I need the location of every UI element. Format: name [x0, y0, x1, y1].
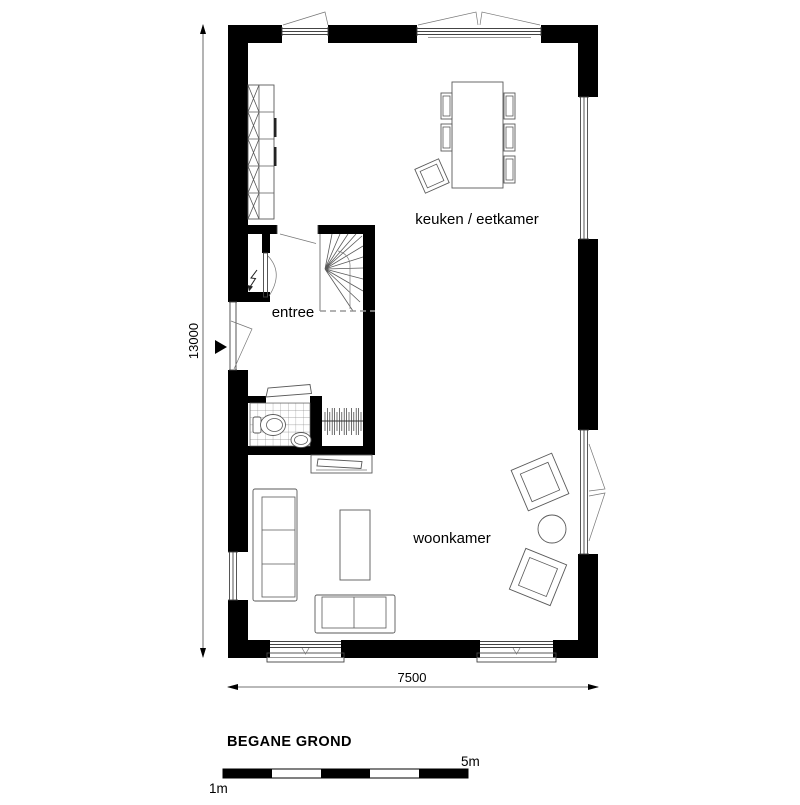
dimension-vertical: 13000 — [186, 24, 206, 658]
dimension-arrow-left — [227, 684, 238, 690]
dining-chair — [504, 93, 515, 119]
dining-table-set — [415, 82, 515, 193]
dining-table — [452, 82, 503, 188]
dimension-arrow-right — [588, 684, 599, 690]
lightning-arrowhead — [248, 285, 254, 292]
window-top-left — [282, 12, 328, 36]
dimension-width-label: 7500 — [398, 670, 427, 685]
dimension-height-label: 13000 — [186, 323, 201, 359]
scale-bar-segment — [321, 769, 370, 778]
plan-title: BEGANE GROND — [227, 734, 352, 750]
coffee-table — [340, 510, 370, 580]
lightning-icon — [250, 270, 257, 287]
hall-kitchen-door — [277, 225, 318, 244]
window-bottom-left — [267, 642, 344, 663]
side-table — [538, 515, 566, 543]
window-swing-icon — [283, 12, 328, 25]
dimension-arrow-top — [200, 24, 206, 34]
entrance-arrow-icon — [215, 340, 227, 354]
kitchen-cabinets — [248, 85, 277, 219]
sofa-two-seat — [315, 595, 395, 633]
armchair-top — [511, 453, 569, 511]
floor-plan: 13000 — [0, 0, 800, 800]
stair-treads — [325, 234, 363, 311]
sofa-three-seat — [253, 489, 297, 601]
dining-chair — [441, 124, 452, 151]
dimension-horizontal: 7500 — [227, 670, 599, 690]
meter-cupboard — [248, 253, 277, 297]
armchair-bottom — [509, 548, 566, 605]
window-right-upper — [579, 97, 589, 239]
window-right-french-doors — [579, 430, 605, 554]
scale-bar-segment — [419, 769, 468, 778]
scale-min-label: 1m — [209, 781, 228, 796]
toilet-room — [250, 385, 312, 448]
toilet-door-leaf — [266, 385, 312, 398]
front-door — [229, 302, 252, 370]
tv-cabinet — [311, 455, 372, 473]
dining-chair-pulled-out — [415, 159, 449, 193]
meter-cupboard-door — [264, 253, 268, 297]
door-swing-icon — [589, 493, 605, 541]
dining-chair — [504, 156, 515, 183]
door-swing-icon — [589, 444, 605, 491]
scale-bar-segment — [223, 769, 272, 778]
window-left-lower — [228, 552, 238, 600]
dining-chair — [441, 93, 452, 119]
room-label-living: woonkamer — [412, 530, 491, 547]
scale-bar: 1m 5m — [209, 754, 480, 796]
window-top-center — [417, 12, 541, 38]
room-label-kitchen-dining: keuken / eetkamer — [415, 211, 538, 228]
appliance-front — [274, 118, 277, 137]
room-label-entrance: entree — [272, 304, 315, 321]
scale-max-label: 5m — [461, 754, 480, 769]
door-swing-icon — [231, 321, 252, 369]
dimension-arrow-bottom — [200, 648, 206, 658]
appliance-front — [274, 147, 277, 166]
window-bottom-right — [477, 642, 556, 663]
hand-basin — [291, 433, 311, 448]
window-swing-icon — [418, 12, 478, 25]
toilet — [253, 415, 286, 436]
door-swing-icon — [268, 256, 276, 296]
radiator — [322, 408, 363, 435]
window-swing-icon — [480, 12, 540, 25]
door-leaf — [280, 234, 316, 244]
dining-chair — [504, 124, 515, 151]
